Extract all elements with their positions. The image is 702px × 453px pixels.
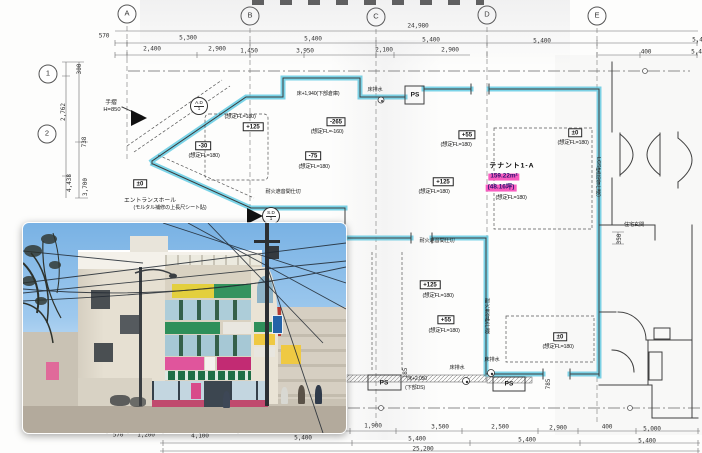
plan-label-d: 5,400 [692, 38, 702, 45]
grid-bubble-1: 1 [39, 65, 58, 84]
plan-label-d: 25,200 [412, 447, 433, 453]
level-box: +125 [420, 280, 441, 289]
plan-label-d: 5,000 [643, 427, 661, 434]
level-box: ±0 [553, 332, 567, 341]
plan-label-dv: 4,438 [67, 174, 73, 192]
plan-label-n5: (モルタル補修の上長尺シート貼) [134, 206, 207, 212]
level-box: ±0 [133, 179, 147, 188]
plan-label-f: (想定FL=180) [557, 140, 588, 146]
grid-bubble-a: A [118, 5, 137, 24]
plan-label-n: 手摺 [105, 100, 117, 106]
plan-label-d: 5,300 [179, 36, 197, 43]
plan-label-f: (想定FL=180) [224, 114, 255, 120]
plan-label-d: 4,100 [191, 434, 209, 441]
entrance-hall-note: エントランスホール [124, 198, 176, 204]
plan-label-dv: 300 [77, 64, 83, 75]
grid-bubble-b: B [241, 7, 260, 26]
pipe-shaft-label: PS [411, 91, 420, 98]
plan-label-d: 3,500 [431, 425, 449, 432]
cropped-title-fragments [252, 0, 484, 5]
plan-label-d: 5,400 [691, 50, 702, 57]
plan-label-n5: (下部DS) [405, 386, 425, 392]
area-drain-bubble: A.D1 [190, 97, 208, 115]
plan-label-f: (想定FL=180) [542, 344, 573, 350]
grid-bubble-c: C [367, 8, 386, 27]
plan-label-f: (想定FL=-160) [311, 129, 344, 135]
plan-label-d: 3,950 [296, 49, 314, 56]
plan-label-d: 570 [99, 34, 110, 41]
photo-wires-and-trees [23, 223, 346, 433]
plan-label-n5: 耐火遮音間仕切 [420, 239, 455, 245]
plan-label-n5: 床排水 [450, 366, 465, 372]
plan-label-f: (想定FL=180) [418, 189, 449, 195]
plan-label-d: 1,450 [240, 49, 258, 56]
plan-label-d: 2,900 [549, 426, 567, 433]
plan-label-d: 2,900 [441, 48, 459, 55]
plan-label-d: 5,400 [304, 37, 322, 44]
plan-label-dv: 3,700 [83, 178, 89, 196]
residence-entrance-note: 住宅玄関 [624, 223, 644, 229]
plan-label-d: 5,400 [422, 38, 440, 45]
level-box: ±0 [568, 128, 582, 137]
plan-label-dv: 738 [82, 137, 88, 148]
plan-label-nv: 耐火遮音壁仕様 [483, 298, 489, 334]
document-page: ABCDE1224,9805705,3005,4005,4005,4005,40… [0, 0, 702, 453]
plan-label-dv: 2,762 [61, 103, 67, 121]
plan-label-dv: 350 [617, 234, 623, 245]
plan-label-n5: 床排水 [485, 358, 500, 364]
level-box: -265 [326, 117, 345, 126]
plan-label-d: 400 [641, 50, 652, 57]
level-box: +125 [433, 177, 454, 186]
plan-label-f: (想定FL=180) [440, 142, 471, 148]
level-box: +55 [458, 130, 475, 139]
plan-label-d: 2,400 [143, 47, 161, 54]
grid-bubble-e: E [588, 7, 607, 26]
plan-label-d: 1,900 [364, 424, 382, 431]
plan-label-d: 400 [602, 425, 613, 432]
plan-label-f: (想定FL=180) [298, 164, 329, 170]
plan-label-n5: 床+2,050 [407, 377, 427, 383]
plan-label-d: 2,100 [375, 48, 393, 55]
tenant-name: テナント1-A [489, 162, 534, 169]
level-box: +55 [437, 315, 454, 324]
plan-label-d: 5,400 [518, 438, 536, 445]
plan-label-d: 2,900 [208, 47, 226, 54]
plan-label-f: (想定FL=180) [428, 328, 459, 334]
plan-label-f: (想定FL=180) [188, 153, 219, 159]
plan-label-f: (想定FL=180) [495, 195, 526, 201]
tenant-area-m2: 159.22m² [488, 174, 519, 181]
plan-label-n5: 床+1,940(下部倉庫) [297, 92, 340, 98]
pipe-shaft-label: PS [505, 380, 514, 387]
plan-label-n: H=850 [103, 107, 120, 113]
plan-label-d: 5,400 [533, 39, 551, 46]
plan-label-dv: 785 [546, 379, 552, 390]
level-box: -30 [195, 141, 211, 150]
building-photo [22, 222, 347, 434]
level-box: +125 [243, 122, 264, 131]
level-box: -75 [305, 151, 321, 160]
pipe-shaft-label: PS [380, 379, 389, 386]
plan-label-d: 2,500 [491, 425, 509, 432]
tenant-area-tsubo: (48.16坪) [486, 185, 517, 192]
plan-label-d: 5,400 [408, 437, 426, 444]
grid-bubble-2: 2 [38, 125, 57, 144]
plan-label-d: 5,400 [294, 436, 312, 443]
plan-label-n5: 耐火遮音間仕切 [266, 190, 301, 196]
plan-label-d: 5,400 [638, 439, 656, 446]
plan-label-n5: 床排水 [368, 88, 383, 94]
grid-bubble-d: D [478, 6, 497, 25]
plan-label-d: 24,980 [407, 24, 428, 31]
plan-label-nv: LGS壁(防音仕様) [594, 157, 600, 197]
plan-label-f: (想定FL=180) [422, 293, 453, 299]
